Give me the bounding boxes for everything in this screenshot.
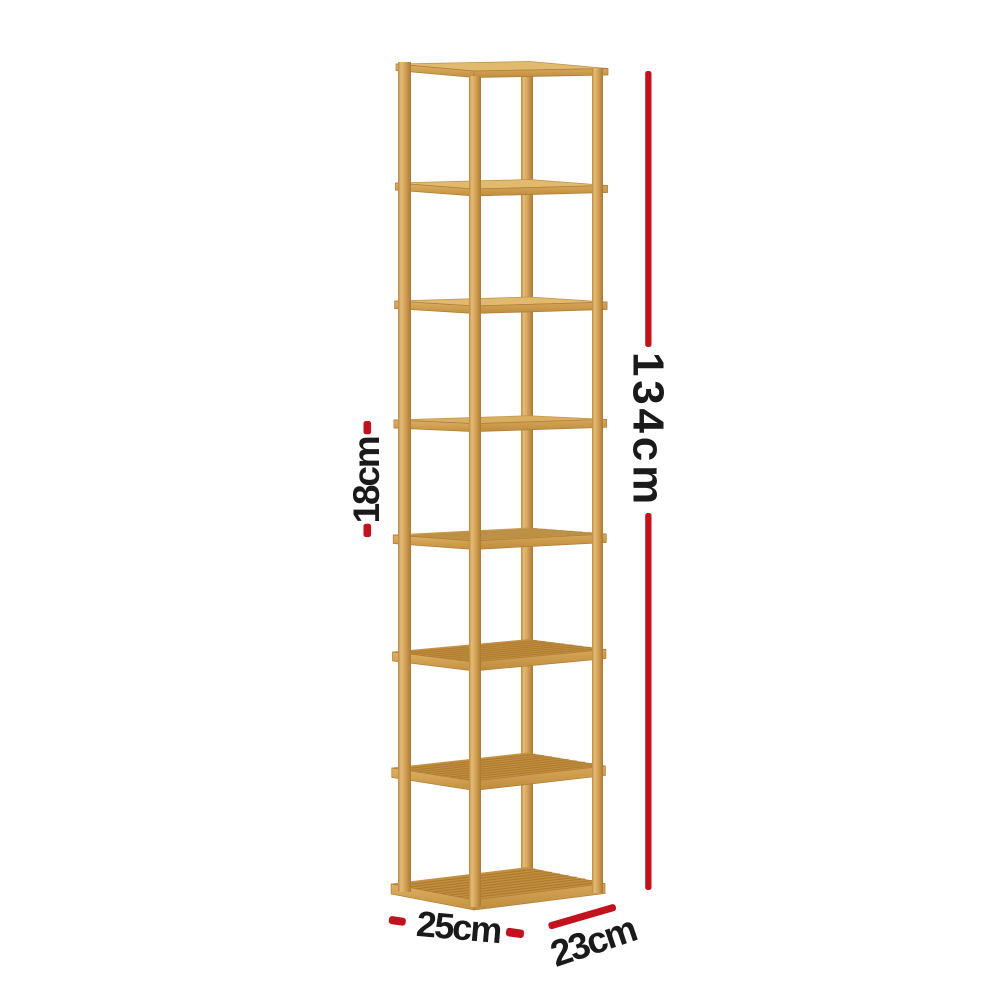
svg-text:18cm: 18cm xyxy=(346,437,387,523)
svg-text:25cm: 25cm xyxy=(415,903,502,951)
svg-text:23cm: 23cm xyxy=(545,908,640,975)
svg-text:134cm: 134cm xyxy=(624,352,673,508)
